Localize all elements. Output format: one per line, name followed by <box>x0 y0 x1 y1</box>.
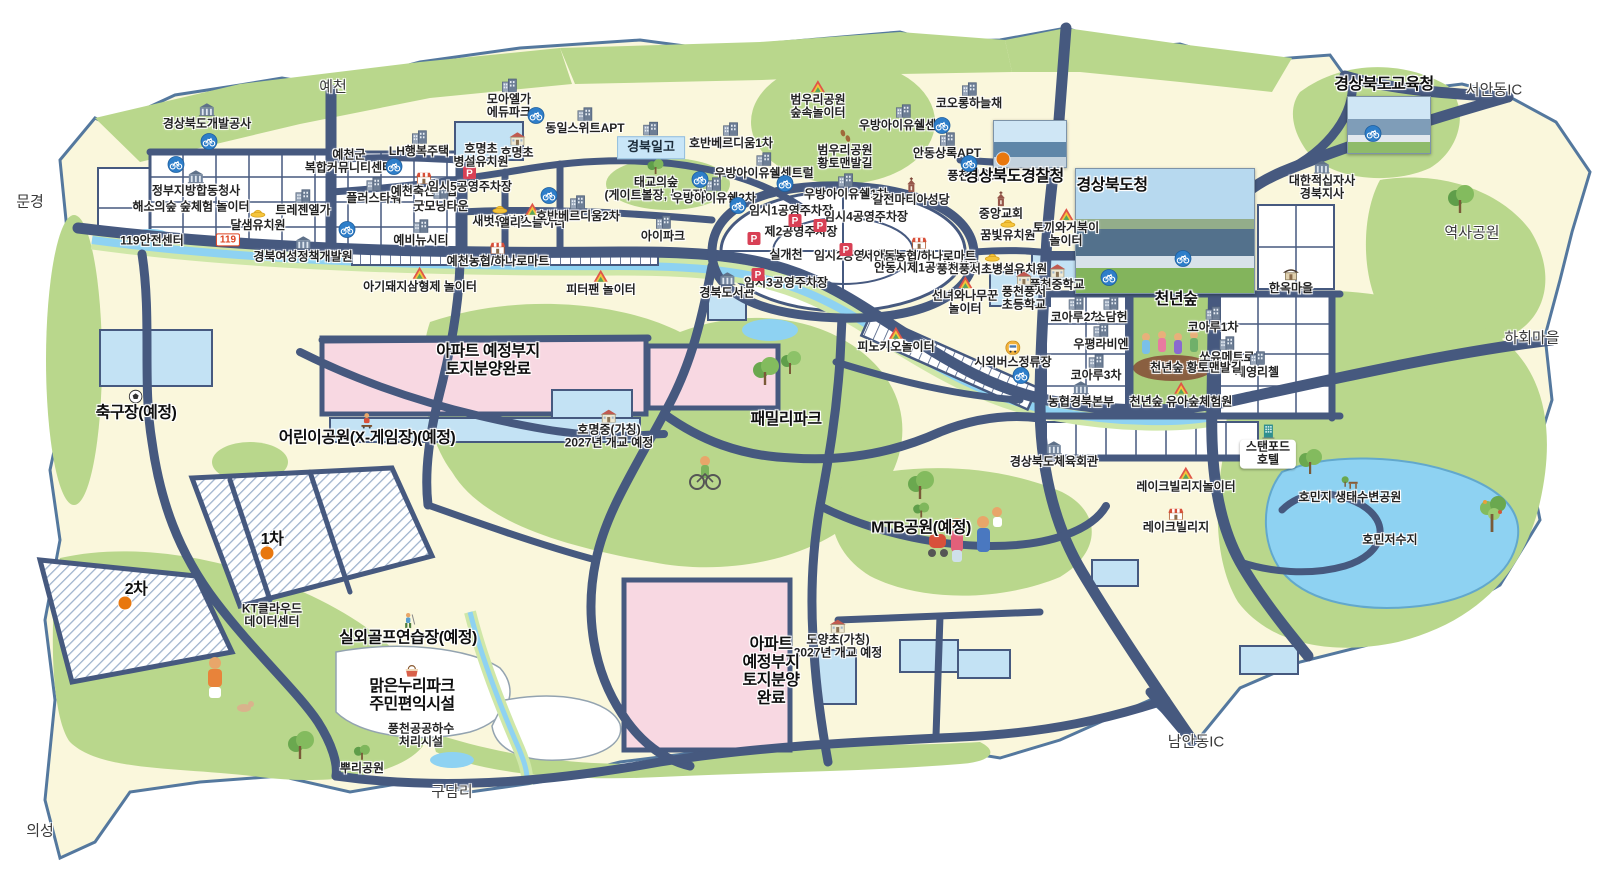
school-icon <box>830 620 846 633</box>
bike-path-icon <box>339 221 356 243</box>
map-label: 시외버스정류장 <box>974 341 1051 369</box>
map-label-text: 중앙교회 <box>979 207 1023 220</box>
map-label: 경북도서관 <box>699 272 754 299</box>
map-label-text: 우방아이유쉘2차 <box>672 192 756 205</box>
map-label-text: 아파트 예정부지 토지분양 완료 <box>743 636 800 708</box>
map-label-text: 우방아이유쉘센트럴 <box>714 167 813 180</box>
church-icon <box>995 191 1007 206</box>
map-label: 맑은누리파크 주민편익시설 <box>369 664 454 714</box>
map-label: 정부지방합동청사 <box>152 170 240 197</box>
gov-icon <box>198 103 216 116</box>
building-icon <box>1104 296 1119 310</box>
map-label: 풍천파출소 <box>947 169 1002 182</box>
play-icon <box>889 326 904 339</box>
map-label-text: 소담헌 <box>1094 311 1127 324</box>
map-label-text: 레이크빌리지놀이터 <box>1136 480 1235 493</box>
play-icon <box>525 202 540 215</box>
map-label-text: 임시3공영주차장 <box>744 276 828 289</box>
map-label: 한옥마을 <box>1269 267 1313 295</box>
map-label: 축구장(예정) <box>96 390 177 423</box>
map-label: 임시2공영주차장 <box>814 249 898 262</box>
tree-icon <box>912 503 930 519</box>
building-icon <box>501 78 516 92</box>
map-label: 풍천풍서 초등학교 <box>1002 272 1046 313</box>
map-label: 달샘유치원 <box>230 208 285 232</box>
tree-icon <box>353 745 371 761</box>
play-icon <box>413 266 428 279</box>
map-label: 아파트 예정부지 토지분양완료 <box>436 343 540 379</box>
map-label: 제2공영주차장 <box>765 225 838 238</box>
map-label: 천년숲 황토맨발길 <box>1150 361 1242 374</box>
building-icon <box>1093 323 1108 337</box>
map-label: 호반베르디움1차 <box>689 122 773 150</box>
map-label: 플러스타워 <box>346 177 401 205</box>
map-label-text: 호민지 생태수변공원 <box>1299 491 1402 504</box>
map-label-text: 경상북도개발공사 <box>163 117 251 130</box>
map-label: 패밀리파크 <box>750 411 821 429</box>
map-label: 경북여성정책개발원 <box>253 236 352 263</box>
map-label: 풍천중학교 <box>1029 264 1084 291</box>
map-label: 호민지 생태수변공원 <box>1299 476 1402 504</box>
map-label-text: 경상북도교육청 <box>1334 76 1434 94</box>
map-label: 피노키오놀이터 <box>857 326 934 353</box>
map-label-text: 경북여성정책개발원 <box>253 250 352 263</box>
map-label: 선녀와나무꾼 놀이터 <box>932 276 998 317</box>
map-label: 중앙교회 <box>979 191 1023 220</box>
map-label-text: 119안전센터 <box>120 234 184 247</box>
map-label-text: 호반베르디움1차 <box>689 137 773 150</box>
city-guide-map: 예천문경의성구담리서안동IC하회마을남안동IC역사공원경상북도개발공사정부지방합… <box>0 0 1600 895</box>
map-label: 트레젠엘가 <box>275 189 330 217</box>
map-label: 경북일고 <box>617 121 685 159</box>
building-icon <box>1206 306 1221 320</box>
hotel-icon <box>1260 424 1275 439</box>
map-label-text: 앨리스놀이터 <box>499 216 565 229</box>
bike-path-icon <box>168 156 185 178</box>
map-label-text: MTB공원(예정) <box>871 520 971 538</box>
map-label: 아기돼지삼형제 놀이터 <box>363 266 477 293</box>
building-icon <box>895 104 910 118</box>
map-label: 서안동IC <box>1466 83 1522 100</box>
map-label: 동일스위트APT <box>545 107 624 135</box>
labels-layer: 예천문경의성구담리서안동IC하회마을남안동IC역사공원경상북도개발공사정부지방합… <box>0 0 1600 895</box>
map-label-text: 예천군 복합커뮤니티센터 <box>305 149 393 176</box>
map-label-text: 우방아이유쉘1차 <box>804 188 888 201</box>
map-label-text: 예천 <box>319 80 347 97</box>
map-label-text: 문경 <box>16 195 44 212</box>
map-label: 도양초(가칭) 2027년 개교 예정 <box>794 620 883 661</box>
map-label: 피터팬 놀이터 <box>566 269 636 296</box>
map-label-text: 피노키오놀이터 <box>857 340 934 353</box>
bike-path-icon <box>541 187 558 209</box>
map-label-text: 달샘유치원 <box>230 219 285 232</box>
foot-icon <box>839 129 851 143</box>
play-icon <box>958 276 973 289</box>
map-label-text: 어린이공원(X-게임장)(예정) <box>279 430 456 448</box>
map-label: 안동상록APT <box>913 132 981 160</box>
map-label-text: 스탠포드 호텔 <box>1240 440 1296 469</box>
parking-icon: P <box>789 214 802 232</box>
map-label: 풍천공공하수 처리시설 <box>388 723 454 750</box>
map-label-text: 안동상록APT <box>913 147 981 160</box>
building-icon <box>577 107 592 121</box>
map-label: 남안동IC <box>1168 735 1224 752</box>
map-label-text: 모아엘가 에듀파크 <box>487 93 531 120</box>
play-icon <box>810 80 825 93</box>
bike-path-icon <box>934 117 951 139</box>
map-label: 호명초 <box>500 132 533 159</box>
skate-icon <box>360 413 374 429</box>
map-label: 역사공원 <box>1444 226 1499 243</box>
soccer-icon <box>129 390 143 404</box>
map-label: 범우리공원 숲속놀이터 <box>790 80 845 121</box>
map-label-text: 임시2공영주차장 <box>814 249 898 262</box>
map-label-text: 아기돼지삼형제 놀이터 <box>363 280 477 293</box>
golf-icon <box>400 613 416 629</box>
building-icon <box>1219 336 1234 350</box>
building-icon <box>571 195 586 209</box>
play-icon <box>1173 381 1188 394</box>
map-label-text: 경상북도청 <box>1076 177 1147 195</box>
map-label-text: 맑은누리파크 주민편익시설 <box>369 678 454 714</box>
bike-path-icon <box>777 175 794 197</box>
building-icon <box>1089 354 1104 368</box>
map-label: 세영리첼 <box>1235 351 1279 379</box>
map-label-text: 천년숲 유아숲체험원 <box>1130 395 1233 408</box>
bike-path-icon <box>528 107 545 129</box>
svg-text:P: P <box>755 270 762 281</box>
map-label-text: 호반베르디움2차 <box>536 210 620 223</box>
map-label: 우방아이유쉘센텀 <box>859 104 947 132</box>
map-label: 코아루1차 <box>1188 306 1239 334</box>
shop-icon <box>1168 508 1184 520</box>
map-label: MTB공원(예정) <box>871 503 971 538</box>
map-label-text: 우평라비엔 <box>1073 338 1128 351</box>
map-label: 경상북도교육청 <box>1334 76 1434 94</box>
map-label-text: 경상북도경찰청 <box>964 168 1064 186</box>
map-label-text: 해소의숲 숲체험 놀이터 <box>132 200 249 213</box>
building-icon <box>707 177 722 191</box>
map-label-text: 축구장(예정) <box>96 405 177 423</box>
map-label: 천년숲 유아숲체험원 <box>1130 381 1233 408</box>
map-label-text: 119 <box>216 233 240 246</box>
map-label-text: 범우리공원 황토맨발길 <box>817 144 872 171</box>
map-label-text: 정부지방합동청사 <box>152 184 240 197</box>
map-label-text: 실개천 <box>769 248 802 261</box>
map-label: 하회마을 <box>1504 331 1559 348</box>
map-label: 뿌리공원 <box>340 745 384 775</box>
svg-text:P: P <box>467 168 474 179</box>
map-label-text: 플러스타워 <box>346 192 401 205</box>
bike-path-icon <box>1365 125 1382 147</box>
map-label-text: 임시4공영주차장 <box>824 210 908 223</box>
map-label-text: 새벗유치원 <box>472 215 527 228</box>
svg-text:P: P <box>751 234 758 245</box>
building-icon <box>1069 296 1084 310</box>
building-icon <box>413 219 428 233</box>
map-label-text: 풍천풍서초병설유치원 <box>937 263 1047 276</box>
map-label-text: 피터팬 놀이터 <box>566 283 636 296</box>
bike-path-icon <box>201 133 218 155</box>
marker-dot-icon <box>997 153 1010 166</box>
shop-icon <box>416 172 432 184</box>
building-icon <box>295 189 310 203</box>
map-label: P임시5공영주차장 <box>428 166 512 193</box>
map-label-text: 호명초 병설유치원 <box>453 143 508 170</box>
map-label: 임시3공영주차장 <box>744 276 828 289</box>
map-label: 레이크빌리지 <box>1143 508 1209 534</box>
map-label: KT클라우드 데이터센터 <box>242 603 302 630</box>
building-icon <box>839 173 854 187</box>
map-label: 문경 <box>16 195 44 212</box>
map-label-text: 코아루3차 <box>1071 369 1122 382</box>
map-label: 소담헌 <box>1094 296 1127 324</box>
map-label: 대한적십자사 경북지사 <box>1289 161 1355 202</box>
marker-dot-icon <box>261 547 274 560</box>
play-icon <box>593 269 608 282</box>
gov-icon <box>1072 381 1090 394</box>
map-label: 토끼와거북이 놀이터 <box>1033 208 1099 249</box>
map-label-text: 예천농협/하나로마트 <box>447 255 550 268</box>
map-label-text: 경북도서관 <box>699 286 754 299</box>
map-label: 우방아이유쉘2차 <box>672 177 756 205</box>
map-label-text: 천년숲 <box>1155 291 1198 309</box>
bike-path-icon <box>1175 250 1192 272</box>
building-icon <box>1249 351 1264 365</box>
map-label-text: 시외버스정류장 <box>974 356 1051 369</box>
map-label-text: KT클라우드 데이터센터 <box>242 603 302 630</box>
map-label: 태교의숲 (게이트볼장, 농구장) <box>605 159 708 203</box>
bus-icon <box>1006 341 1021 355</box>
bike-path-icon <box>1101 269 1118 291</box>
bike-path-icon <box>1013 367 1030 389</box>
map-label: 레이크빌리지놀이터 <box>1136 466 1235 493</box>
map-label-text: 도양초(가칭) 2027년 개교 예정 <box>794 634 883 661</box>
map-label: 해소의숲 숲체험 놀이터 <box>132 200 249 213</box>
map-label-text: 호민저수지 <box>1362 533 1417 546</box>
map-label: 경상북도개발공사 <box>163 103 251 130</box>
gov-icon <box>1313 161 1331 174</box>
map-label: 예천 <box>319 80 347 97</box>
hat-icon <box>250 208 265 218</box>
gov-icon <box>187 170 205 183</box>
school-icon <box>1049 264 1065 277</box>
building-icon <box>644 121 659 135</box>
map-label-text: 패밀리파크 <box>750 411 821 429</box>
map-label-text: 범우리공원 숲속놀이터 <box>790 94 845 121</box>
parking-icon: P <box>814 219 827 237</box>
map-label: 모아엘가 에듀파크 <box>487 78 531 120</box>
map-label-text: 풍천풍서 초등학교 <box>1002 286 1046 313</box>
bench-icon <box>1341 476 1359 490</box>
map-label-text: 호명초 <box>500 146 533 159</box>
basket-icon <box>404 664 419 677</box>
map-label: 실개천 <box>769 248 802 261</box>
map-label: 꿈빛유치원 <box>980 218 1035 242</box>
map-label: 우방아이유쉘센트럴 <box>714 152 813 180</box>
map-label-text: 풍천파출소 <box>947 169 1002 182</box>
building-icon <box>655 215 670 229</box>
map-label: 실외골프연습장(예정) <box>339 613 477 648</box>
shop-icon <box>490 242 506 254</box>
map-label-text: 농협경북본부 <box>1048 395 1114 408</box>
school-icon <box>601 410 617 423</box>
map-label: 구담리 <box>431 785 472 802</box>
church-icon <box>905 177 917 192</box>
svg-text:P: P <box>843 245 850 256</box>
map-label-text: 토끼와거북이 놀이터 <box>1033 222 1099 249</box>
map-label: 새벗유치원 <box>472 204 527 228</box>
map-label: 굿모닝타운 <box>413 185 468 213</box>
map-label: 호민저수지 <box>1362 533 1417 546</box>
map-label-text: 아이파크 <box>641 230 685 243</box>
play-icon <box>1059 208 1074 221</box>
map-label: 호명중(가칭) 2027년 개교 예정 <box>565 410 654 451</box>
parking-icon: P <box>840 243 853 261</box>
map-label: 경상북도경찰청 <box>964 168 1064 186</box>
tree-icon <box>647 159 665 175</box>
map-label-text: 예천축산농협 <box>391 185 457 198</box>
map-label-text: 경상북도체육회관 <box>1010 455 1098 468</box>
map-label-text: 호명중(가칭) 2027년 개교 예정 <box>565 424 654 451</box>
building-icon <box>411 130 426 144</box>
hanok-icon <box>1282 267 1300 281</box>
map-label-text: 우방아이유쉘센텀 <box>859 119 947 132</box>
map-label: 코아루2차 <box>1051 296 1102 324</box>
map-label: 서안동농협/하나로마트 <box>862 237 976 263</box>
map-label-text: 한옥마을 <box>1269 282 1313 295</box>
parking-icon: P <box>752 268 765 286</box>
school-icon <box>509 132 525 145</box>
building-icon <box>757 152 772 166</box>
map-label-text: 제2공영주차장 <box>765 225 838 238</box>
map-label-text: 역사공원 <box>1444 226 1499 243</box>
map-label: 임시4공영주차장 <box>824 210 908 223</box>
map-label-text: 풍천공공하수 처리시설 <box>388 723 454 750</box>
map-label: 아파트 예정부지 토지분양 완료 <box>743 636 800 708</box>
bike-path-icon <box>961 155 978 177</box>
map-label: 갈전마티아성당 <box>872 177 949 206</box>
map-label: 의성 <box>26 824 54 841</box>
svg-text:P: P <box>817 221 824 232</box>
map-label: 우평라비엔 <box>1073 323 1128 351</box>
map-label-text: LH행복주택 <box>389 145 449 158</box>
map-label: 농협경북본부 <box>1048 381 1114 408</box>
map-label: 호명초 병설유치원 <box>453 143 508 170</box>
map-label-text: 세영리첼 <box>1235 366 1279 379</box>
map-label: 스탠포드 호텔 <box>1240 424 1296 469</box>
map-label-text: 뿌리공원 <box>340 762 384 775</box>
bike-path-icon <box>730 197 747 219</box>
map-label: 2차 <box>125 581 148 599</box>
map-label: LH행복주택 <box>389 130 449 158</box>
parking-icon: P <box>464 166 477 179</box>
hat-icon <box>1000 218 1015 228</box>
map-label-text: 꿈빛유치원 <box>980 229 1035 242</box>
map-label: 우방아이유쉘1차 <box>804 173 888 201</box>
map-label: 예천농협/하나로마트 <box>447 242 550 268</box>
map-label-text: 서안동농협/하나로마트 <box>862 250 976 263</box>
map-label-text: 경북일고 <box>617 136 685 159</box>
map-label: 경상북도체육회관 <box>1010 441 1098 468</box>
bike-path-icon <box>692 171 709 193</box>
map-label-text: 트레젠엘가 <box>275 204 330 217</box>
map-label: 예비뉴시티 <box>393 219 448 247</box>
play-icon <box>1179 466 1194 479</box>
parking-icon: P <box>748 232 761 250</box>
map-label: 범우리공원 황토맨발길 <box>817 129 872 171</box>
map-label: 천년숲 <box>1155 291 1198 309</box>
map-label-text: 코아루2차 <box>1051 311 1102 324</box>
map-label: 예천축산농협 <box>391 172 457 198</box>
map-label-text: 의성 <box>26 824 54 841</box>
map-label: 코아루3차 <box>1071 354 1122 382</box>
map-label: 경상북도청 <box>1076 177 1147 195</box>
bike-path-icon <box>386 158 403 180</box>
map-label: 앨리스놀이터 <box>499 202 565 229</box>
map-label-text: 선녀와나무꾼 놀이터 <box>932 290 998 317</box>
map-label-text: 구담리 <box>431 785 472 802</box>
hat-icon <box>492 204 507 214</box>
map-label-text: 대한적십자사 경북지사 <box>1289 175 1355 202</box>
building-icon <box>724 122 739 136</box>
map-label-text: 코아루1차 <box>1188 321 1239 334</box>
gov-icon <box>718 272 736 285</box>
map-label: 예천군 복합커뮤니티센터 <box>305 149 393 176</box>
map-label: 안동시제1공영주차장 <box>874 261 980 274</box>
building-icon <box>366 177 381 191</box>
map-label: 119안전센터 <box>120 234 184 247</box>
building-icon <box>433 185 448 199</box>
svg-text:P: P <box>792 216 799 227</box>
map-label-text: 코오롱하늘채 <box>936 97 1002 110</box>
shop-icon <box>911 237 927 249</box>
gov-icon <box>294 236 312 249</box>
map-label-text: 굿모닝타운 <box>413 200 468 213</box>
marker-dot-icon <box>119 597 132 610</box>
map-label-text: 갈전마티아성당 <box>872 193 949 206</box>
map-label-text: 예비뉴시티 <box>393 234 448 247</box>
map-label-text: 동일스위트APT <box>545 122 624 135</box>
map-label-text: 레이크빌리지 <box>1143 521 1209 534</box>
gov-icon <box>1045 441 1063 454</box>
building-icon <box>939 132 954 146</box>
map-label-text: 임시1공영주차장 <box>749 204 833 217</box>
map-label: 119 <box>216 233 240 246</box>
map-label-text: 쏘유메트로 <box>1199 351 1254 364</box>
building-icon <box>962 82 977 96</box>
map-label: 코오롱하늘채 <box>936 82 1002 110</box>
map-label-text: 천년숲 황토맨발길 <box>1150 361 1242 374</box>
map-label: 임시1공영주차장 <box>749 204 833 217</box>
map-label: 쏘유메트로 <box>1199 336 1254 364</box>
hat-icon <box>985 252 1000 262</box>
map-label: 풍천풍서초병설유치원 <box>937 252 1047 276</box>
map-label-text: 2차 <box>125 581 148 599</box>
map-label-text: 임시5공영주차장 <box>428 180 512 193</box>
map-label: 호반베르디움2차 <box>536 195 620 223</box>
map-label: 어린이공원(X-게임장)(예정) <box>279 413 456 448</box>
map-label-text: 아파트 예정부지 토지분양완료 <box>436 343 540 379</box>
map-label-text: 서안동IC <box>1466 83 1522 100</box>
map-label-text: 태교의숲 (게이트볼장, 농구장) <box>605 176 708 203</box>
map-label-text: 안동시제1공영주차장 <box>874 261 980 274</box>
map-label-text: 풍천중학교 <box>1029 278 1084 291</box>
map-label-text: 하회마을 <box>1504 331 1559 348</box>
map-label-text: 남안동IC <box>1168 735 1224 752</box>
map-label-text: 실외골프연습장(예정) <box>339 630 477 648</box>
map-label: 아이파크 <box>641 215 685 243</box>
